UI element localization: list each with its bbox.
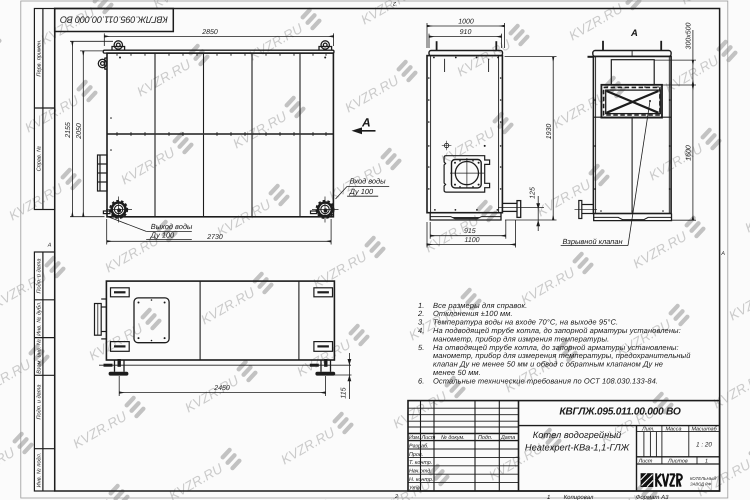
svg-text:КОТЕЛЬНЫЙ: КОТЕЛЬНЫЙ xyxy=(690,476,716,481)
svg-text:Пров.: Пров. xyxy=(409,452,423,458)
svg-text:2050: 2050 xyxy=(76,123,83,140)
svg-text:915: 915 xyxy=(464,228,476,235)
svg-text:Утв.: Утв. xyxy=(408,485,421,491)
svg-text:Копировал: Копировал xyxy=(564,494,594,500)
svg-text:Инв. № дубл.: Инв. № дубл. xyxy=(36,301,43,335)
svg-text:910: 910 xyxy=(460,29,472,36)
svg-text:Подп.: Подп. xyxy=(478,435,492,441)
svg-text:Лит.: Лит. xyxy=(641,426,655,432)
svg-text:Т. контр.: Т. контр. xyxy=(409,460,432,466)
svg-text:Выход воды: Выход воды xyxy=(151,222,193,231)
svg-text:КВГЛЖ.095.011.00.000 ВО: КВГЛЖ.095.011.00.000 ВО xyxy=(559,407,681,418)
svg-text:Лист: Лист xyxy=(638,458,653,464)
svg-text:Лист: Лист xyxy=(421,435,436,441)
svg-text:Подп. и дата: Подп. и дата xyxy=(36,384,43,419)
svg-text:1930: 1930 xyxy=(546,124,553,140)
svg-text:Вход воды: Вход воды xyxy=(350,177,386,186)
svg-text:Взрывной клапан: Взрывной клапан xyxy=(563,237,623,246)
svg-text:2155: 2155 xyxy=(65,122,72,139)
svg-text:5.: 5. xyxy=(418,343,424,352)
svg-text:№ докум.: № докум. xyxy=(441,435,465,441)
svg-text:Ду 100: Ду 100 xyxy=(150,231,175,240)
svg-text:Н. контр.: Н. контр. xyxy=(409,477,433,483)
svg-text:Изм.: Изм. xyxy=(409,435,421,441)
svg-text:2850: 2850 xyxy=(201,29,218,36)
svg-text:Разраб.: Разраб. xyxy=(409,443,429,449)
svg-text:А: А xyxy=(630,28,638,39)
svg-text:Котел водогрейный: Котел водогрейный xyxy=(533,430,621,440)
svg-text:115: 115 xyxy=(341,387,348,398)
svg-text:6.: 6. xyxy=(418,376,424,385)
svg-text:Справ. №: Справ. № xyxy=(37,146,43,171)
svg-text:КВГЛЖ.095.011.00.000 ВО: КВГЛЖ.095.011.00.000 ВО xyxy=(60,15,168,25)
svg-text:Остальные технические требован: Остальные технические требования по ОСТ … xyxy=(433,376,658,385)
svg-text:Формат А3: Формат А3 xyxy=(636,494,669,500)
svg-text:125: 125 xyxy=(530,187,537,199)
svg-text:Листов: Листов xyxy=(667,458,688,464)
svg-text:1: 1 xyxy=(547,494,550,500)
svg-text:Нач.отд.: Нач.отд. xyxy=(409,469,432,475)
svg-text:Перв. примен.: Перв. примен. xyxy=(37,39,43,76)
svg-text:А: А xyxy=(47,243,52,249)
svg-text:Heatexpert-КВа-1,1-ГЛЖ: Heatexpert-КВа-1,1-ГЛЖ xyxy=(525,443,630,453)
svg-text:А: А xyxy=(720,251,725,257)
svg-text:300х500: 300х500 xyxy=(685,22,692,49)
svg-text:ЗАВОД РФ: ЗАВОД РФ xyxy=(690,481,712,486)
svg-text:1000: 1000 xyxy=(458,18,474,25)
svg-text:Взам. инв. №: Взам. инв. № xyxy=(37,339,43,374)
svg-text:Инв. № подл.: Инв. № подл. xyxy=(36,453,43,488)
svg-text:1600: 1600 xyxy=(685,145,692,161)
svg-text:Ду 100: Ду 100 xyxy=(349,187,374,196)
svg-text:Подп. и дата: Подп. и дата xyxy=(36,258,43,293)
svg-text:4.: 4. xyxy=(418,326,424,335)
svg-text:Масса: Масса xyxy=(666,426,682,432)
svg-text:Масштаб: Масштаб xyxy=(692,426,718,432)
svg-text:2: 2 xyxy=(393,0,397,6)
svg-text:1100: 1100 xyxy=(464,237,479,244)
svg-text:А: А xyxy=(361,116,371,130)
svg-text:Дата: Дата xyxy=(500,435,515,441)
svg-text:1 : 20: 1 : 20 xyxy=(696,441,712,448)
svg-text:2450: 2450 xyxy=(213,385,230,392)
svg-text:2730: 2730 xyxy=(206,234,223,241)
svg-text:1: 1 xyxy=(705,458,708,464)
svg-text:2: 2 xyxy=(394,494,398,500)
